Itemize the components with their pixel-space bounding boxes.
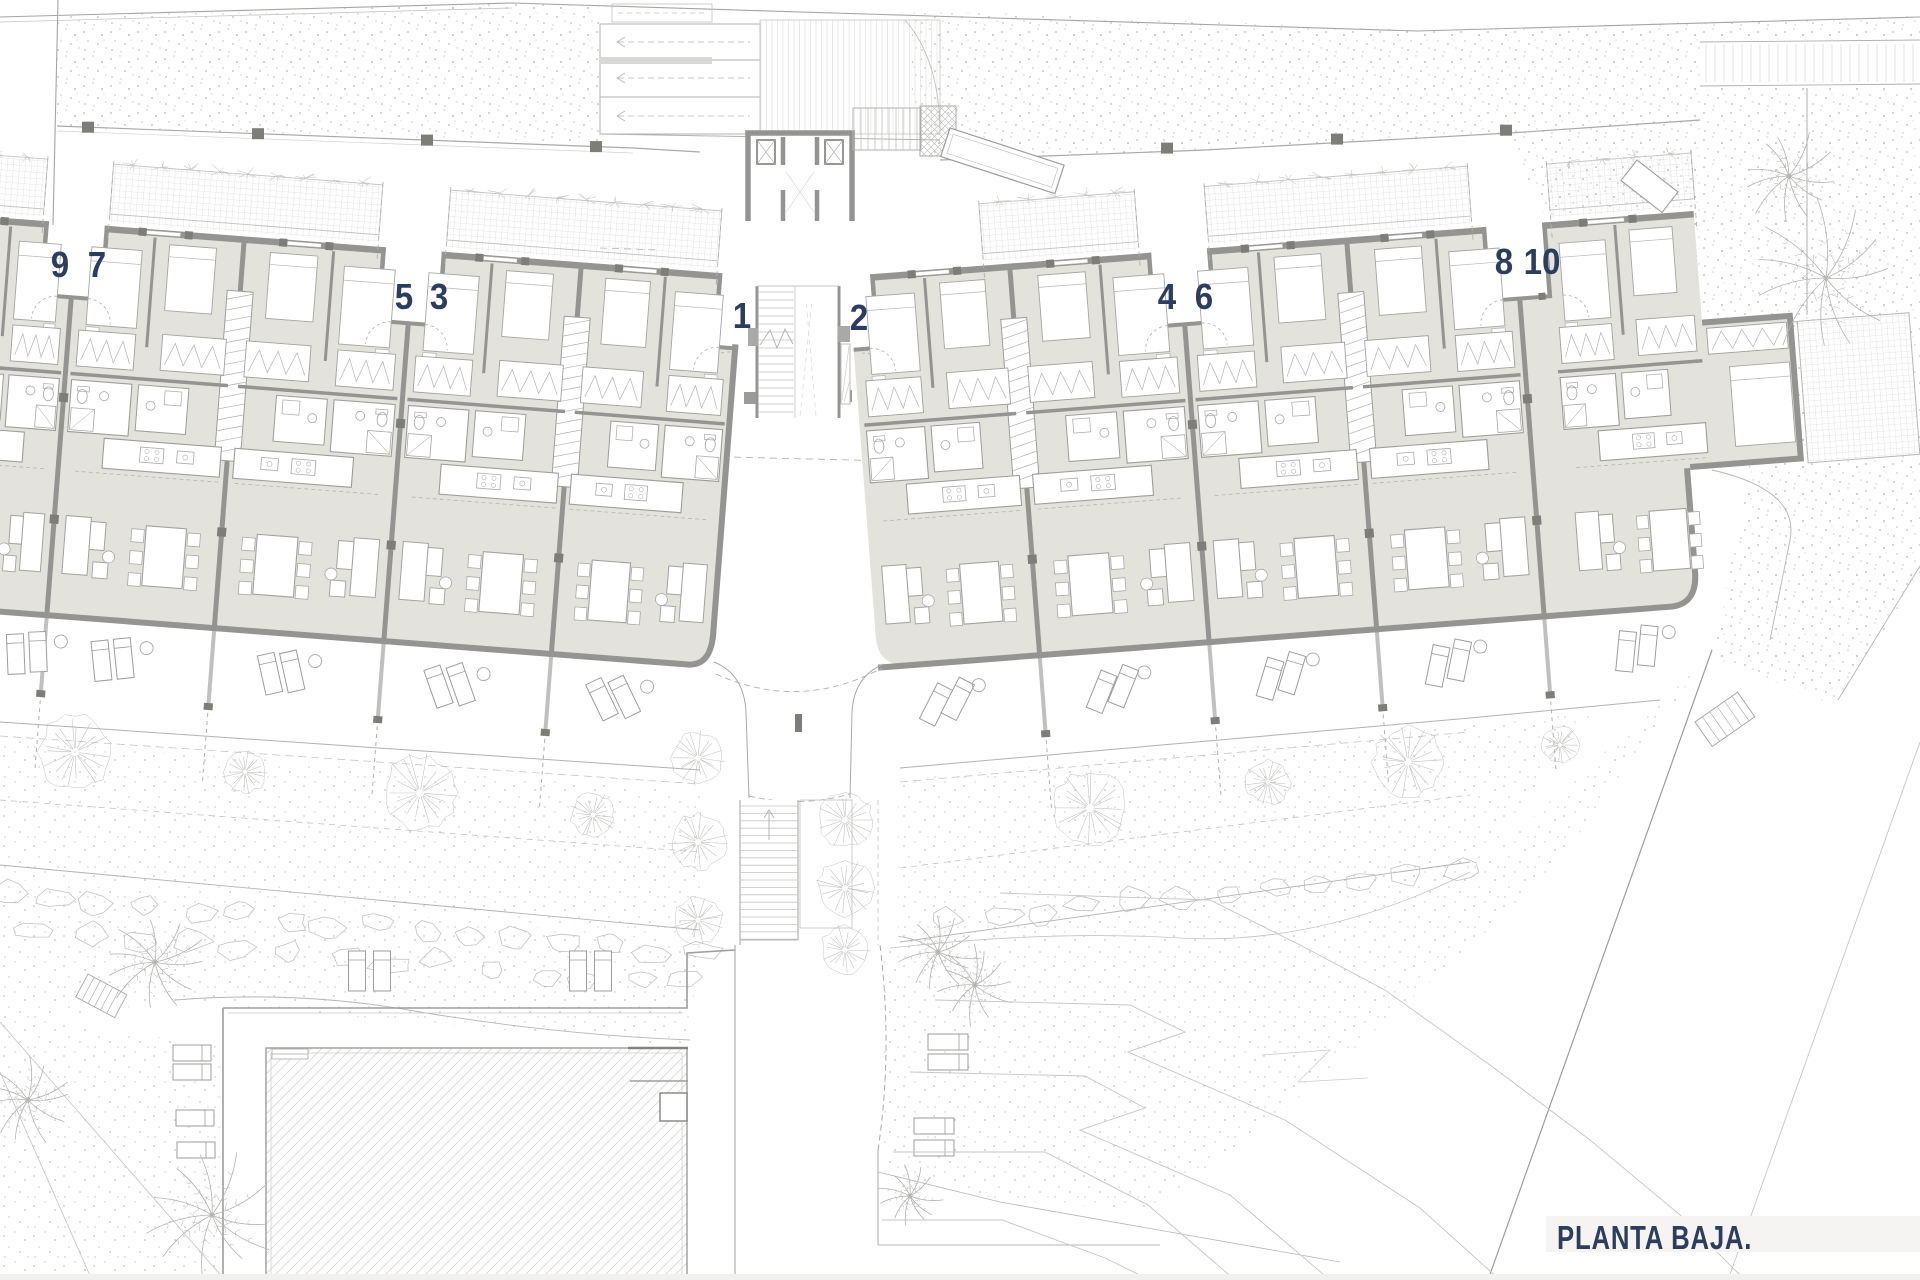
svg-text:6: 6 — [1195, 278, 1213, 318]
svg-text:PLANTA BAJA.: PLANTA BAJA. — [1557, 1220, 1752, 1257]
svg-text:2: 2 — [850, 299, 868, 339]
svg-text:10: 10 — [1524, 243, 1561, 283]
svg-text:1: 1 — [733, 297, 751, 337]
svg-text:7: 7 — [88, 246, 106, 286]
svg-text:4: 4 — [1158, 278, 1177, 318]
svg-text:5: 5 — [395, 278, 413, 318]
svg-text:9: 9 — [51, 246, 69, 286]
svg-text:3: 3 — [430, 278, 448, 318]
svg-text:8: 8 — [1495, 243, 1513, 283]
